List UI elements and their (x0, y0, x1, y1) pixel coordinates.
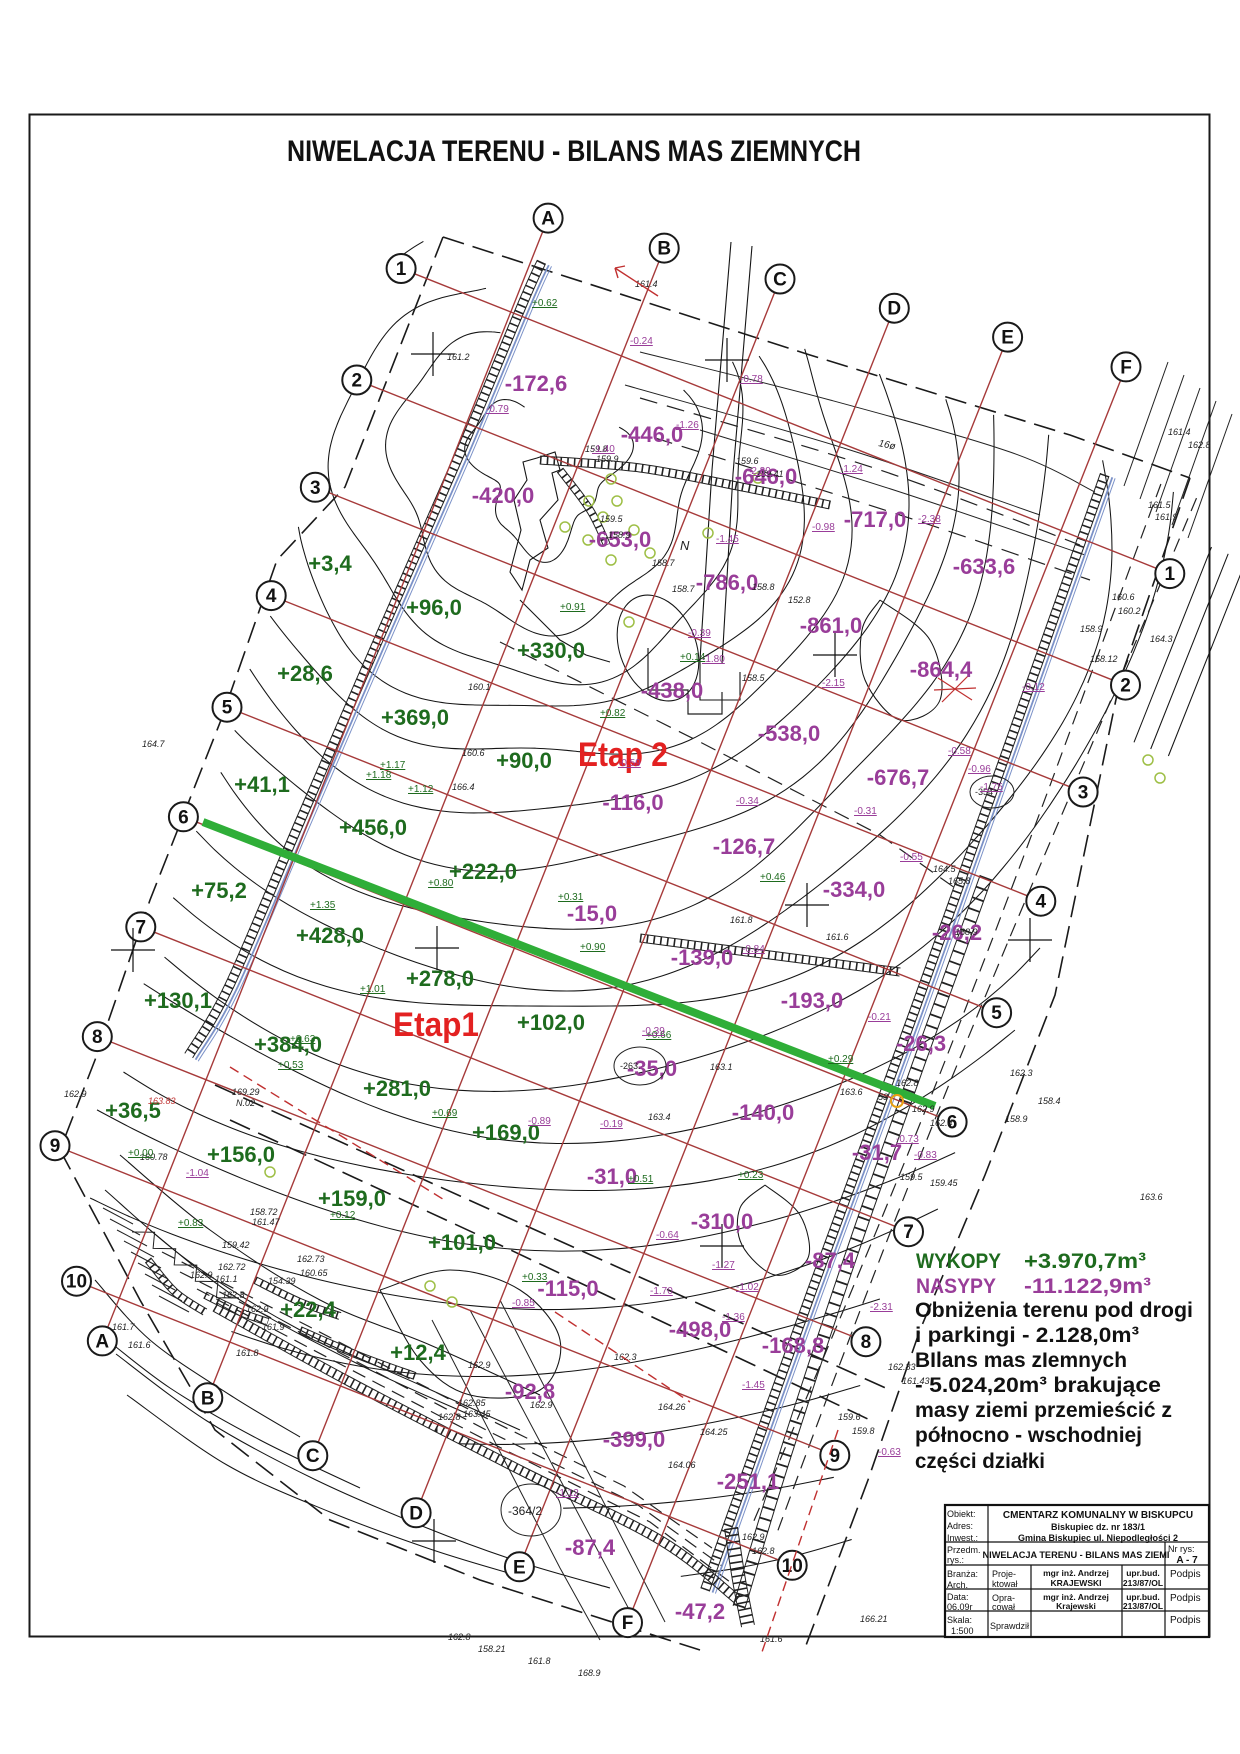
svg-text:-0.39: -0.39 (642, 1026, 665, 1037)
svg-text:158.8: 158.8 (752, 582, 775, 592)
svg-text:-1.75: -1.75 (980, 782, 1003, 793)
svg-text:+0.63: +0.63 (290, 1034, 316, 1045)
svg-text:-26,3: -26,3 (896, 1031, 946, 1056)
svg-text:-0.89: -0.89 (528, 1116, 551, 1127)
svg-text:-1.80: -1.80 (702, 654, 725, 665)
svg-text:162.4: 162.4 (930, 1118, 953, 1128)
svg-text:163.4: 163.4 (648, 1112, 671, 1122)
svg-text:CMENTARZ KOMUNALNY W BISKUPCU: CMENTARZ KOMUNALNY W BISKUPCU (1003, 1510, 1193, 1521)
svg-text:162.8: 162.8 (896, 1078, 919, 1088)
svg-text:-0.34: -0.34 (736, 796, 759, 807)
svg-text:Podpis: Podpis (1170, 1615, 1201, 1626)
svg-text:162.9: 162.9 (530, 1400, 553, 1410)
svg-text:164.5: 164.5 (933, 864, 957, 874)
svg-text:162.72: 162.72 (218, 1262, 246, 1272)
svg-text:-334,0: -334,0 (823, 877, 885, 902)
svg-text:161.1: 161.1 (215, 1274, 238, 1284)
svg-text:+0.33: +0.33 (522, 1272, 548, 1283)
svg-text:161.9: 161.9 (1155, 512, 1178, 522)
svg-text:Gmina Biskupiec ul. Niepodległ: Gmina Biskupiec ul. Niepodległości 2 (1018, 1533, 1178, 1543)
svg-text:D: D (409, 1503, 423, 1524)
svg-text:-2.31: -2.31 (870, 1302, 893, 1313)
svg-text:161.7: 161.7 (112, 1322, 136, 1332)
svg-text:158.72: 158.72 (250, 1207, 278, 1217)
svg-text:C: C (306, 1446, 320, 1467)
svg-text:161.47: 161.47 (252, 1217, 281, 1227)
svg-text:1: 1 (396, 259, 407, 280)
svg-text:162.3: 162.3 (1010, 1068, 1033, 1078)
svg-text:164.7: 164.7 (142, 739, 166, 749)
svg-text:9: 9 (50, 1136, 61, 1157)
svg-text:+1.35: +1.35 (310, 900, 336, 911)
svg-text:158.5: 158.5 (742, 673, 766, 683)
svg-text:6: 6 (178, 807, 189, 828)
svg-text:161.6: 161.6 (128, 1340, 151, 1350)
svg-text:168.9: 168.9 (578, 1668, 601, 1678)
svg-text:+369,0: +369,0 (381, 705, 449, 730)
svg-text:+0.46: +0.46 (760, 872, 786, 883)
svg-text:159.45: 159.45 (930, 1178, 959, 1188)
svg-text:Przedm.: Przedm. (947, 1545, 981, 1555)
svg-text:162.83: 162.83 (888, 1362, 916, 1372)
svg-text:162.8: 162.8 (438, 1412, 461, 1422)
svg-text:162.3: 162.3 (614, 1352, 637, 1362)
svg-text:3: 3 (1078, 783, 1089, 804)
svg-text:5: 5 (991, 1003, 1002, 1024)
svg-text:-15,0: -15,0 (567, 901, 617, 926)
svg-text:-116,0: -116,0 (602, 790, 663, 815)
svg-text:+428,0: +428,0 (296, 923, 364, 948)
svg-text:158.7: 158.7 (652, 558, 676, 568)
svg-text:159.9: 159.9 (596, 454, 619, 464)
svg-text:161.8: 161.8 (236, 1348, 259, 1358)
svg-text:-47,2: -47,2 (675, 1599, 725, 1624)
svg-text:162.8: 162.8 (752, 1546, 775, 1556)
svg-text:163.6: 163.6 (840, 1087, 863, 1097)
svg-text:WYKOPY: WYKOPY (916, 1249, 1001, 1273)
svg-text:północno - wschodniej: północno - wschodniej (915, 1423, 1142, 1447)
svg-text:1: 1 (1165, 564, 1176, 585)
svg-text:+102,0: +102,0 (517, 1010, 585, 1035)
svg-text:+0.51: +0.51 (628, 1174, 654, 1185)
svg-text:rys.:: rys.: (947, 1555, 964, 1565)
svg-text:164.25: 164.25 (700, 1427, 729, 1437)
svg-text:-87,4: -87,4 (565, 1535, 616, 1560)
svg-text:-2.38: -2.38 (918, 514, 941, 525)
svg-text:+96,0: +96,0 (406, 595, 462, 620)
svg-text:4: 4 (266, 586, 277, 607)
svg-text:+456,0: +456,0 (339, 815, 407, 840)
svg-text:4: 4 (1036, 892, 1047, 913)
svg-text:-1.02: -1.02 (736, 1282, 759, 1293)
svg-text:-0.58: -0.58 (948, 746, 971, 757)
svg-text:i parkingi - 2.128,0m³: i parkingi - 2.128,0m³ (915, 1323, 1139, 1347)
svg-text:F: F (1120, 357, 1132, 378)
svg-text:-1.24: -1.24 (840, 464, 863, 475)
svg-text:162.8: 162.8 (222, 1290, 245, 1300)
svg-text:8: 8 (861, 1332, 872, 1353)
svg-text:-1.27: -1.27 (712, 1260, 735, 1271)
svg-text:169.29: 169.29 (232, 1087, 260, 1097)
svg-text:-1.40: -1.40 (592, 444, 615, 455)
svg-text:160.65: 160.65 (300, 1268, 329, 1278)
svg-text:+0.90: +0.90 (580, 942, 606, 953)
svg-text:-11.122,9m³: -11.122,9m³ (1024, 1274, 1151, 1298)
svg-text:KRAJEWSKI: KRAJEWSKI (1050, 1578, 1101, 1588)
svg-text:154.39: 154.39 (268, 1276, 296, 1286)
svg-text:158.21: 158.21 (478, 1644, 506, 1654)
svg-text:+1.12: +1.12 (408, 784, 434, 795)
svg-text:-0.63: -0.63 (878, 1447, 901, 1458)
svg-text:+0.62: +0.62 (532, 298, 558, 309)
svg-text:+0.69: +0.69 (432, 1108, 458, 1119)
svg-text:+3,4: +3,4 (308, 551, 352, 576)
svg-text:ktował: ktował (992, 1579, 1018, 1589)
svg-text:166.4: 166.4 (452, 782, 475, 792)
svg-text:-1.36: -1.36 (722, 1312, 745, 1323)
svg-text:162.85: 162.85 (458, 1398, 487, 1408)
svg-text:159.6: 159.6 (736, 456, 759, 466)
svg-text:D: D (887, 299, 901, 320)
svg-text:1:500: 1:500 (951, 1626, 974, 1636)
svg-text:NIWELACJA TERENU - BILANS MAS: NIWELACJA TERENU - BILANS MAS ZIEMI (983, 1550, 1170, 1560)
svg-text:Sprawdził: Sprawdził (990, 1621, 1029, 1631)
svg-text:-1.12: -1.12 (556, 1488, 579, 1499)
svg-text:-1.04: -1.04 (186, 1168, 209, 1179)
svg-text:-864,4: -864,4 (910, 657, 973, 682)
svg-text:-633,6: -633,6 (953, 554, 1015, 579)
svg-text:E: E (1001, 328, 1014, 349)
svg-text:161.2: 161.2 (447, 352, 470, 362)
svg-text:-1.45: -1.45 (742, 1380, 765, 1391)
svg-text:-861,0: -861,0 (800, 613, 862, 638)
svg-text:-0.31: -0.31 (854, 806, 877, 817)
svg-text:161.8: 161.8 (730, 915, 753, 925)
svg-text:162.9: 162.9 (912, 1104, 935, 1114)
svg-text:części działki: części działki (915, 1449, 1045, 1473)
svg-text:162.8: 162.8 (448, 1632, 471, 1642)
svg-text:158.9: 158.9 (1080, 624, 1103, 634)
svg-text:-446,0: -446,0 (621, 422, 683, 447)
svg-text:+22,4: +22,4 (280, 1297, 336, 1322)
svg-text:163.45: 163.45 (463, 1409, 492, 1419)
svg-text:Inwest.:: Inwest.: (947, 1533, 978, 1543)
svg-text:-251,1: -251,1 (717, 1469, 779, 1494)
svg-text:E: E (513, 1557, 526, 1578)
svg-text:upr.bud.: upr.bud. (1126, 1568, 1160, 1578)
svg-text:Obniżenia terenu pod drogi: Obniżenia terenu pod drogi (915, 1298, 1193, 1322)
svg-text:-0.73: -0.73 (896, 1134, 919, 1145)
svg-text:+222,0: +222,0 (449, 859, 517, 884)
svg-text:Proje-: Proje- (992, 1569, 1016, 1579)
svg-text:161.6: 161.6 (760, 1634, 783, 1644)
svg-text:7: 7 (136, 917, 147, 938)
svg-text:Arch.: Arch. (947, 1580, 968, 1590)
svg-text:162.8: 162.8 (1188, 440, 1211, 450)
svg-text:-399,0: -399,0 (603, 1427, 665, 1452)
svg-text:+75,2: +75,2 (191, 878, 247, 903)
svg-text:Biskupiec dz. nr 183/1: Biskupiec dz. nr 183/1 (1051, 1522, 1145, 1532)
svg-text:162.9: 162.9 (468, 1360, 491, 1370)
svg-text:Adres:: Adres: (947, 1521, 973, 1531)
svg-text:164.26: 164.26 (658, 1402, 686, 1412)
svg-text:163.1: 163.1 (710, 1062, 733, 1072)
svg-text:159.5: 159.5 (900, 1172, 924, 1182)
svg-text:+41,1: +41,1 (234, 772, 290, 797)
svg-text:-172,6: -172,6 (505, 371, 567, 396)
svg-text:2: 2 (1120, 676, 1131, 697)
svg-text:-717,0: -717,0 (844, 507, 906, 532)
svg-text:+0.29: +0.29 (828, 1054, 854, 1065)
svg-text:-676,7: -676,7 (867, 765, 929, 790)
svg-text:161.4: 161.4 (1168, 427, 1191, 437)
svg-text:+159,0: +159,0 (318, 1186, 386, 1211)
svg-text:+0.80: +0.80 (428, 878, 454, 889)
svg-text:Nr rys:: Nr rys: (1168, 1544, 1195, 1554)
svg-text:-1.26: -1.26 (676, 420, 699, 431)
svg-text:-193,0: -193,0 (781, 988, 843, 1013)
svg-text:Podpis: Podpis (1170, 1569, 1201, 1580)
svg-text:+0.83: +0.83 (178, 1218, 204, 1229)
svg-text:A: A (541, 209, 555, 230)
svg-text:+101,0: +101,0 (428, 1230, 496, 1255)
svg-text:F: F (622, 1613, 634, 1634)
svg-text:B: B (657, 239, 671, 260)
svg-text:-0.12: -0.12 (1022, 682, 1045, 693)
svg-text:+130,1: +130,1 (144, 988, 212, 1013)
svg-text:166.21: 166.21 (860, 1614, 888, 1624)
svg-text:152.8: 152.8 (788, 595, 811, 605)
svg-text:159.6: 159.6 (838, 1412, 861, 1422)
svg-text:-1.70: -1.70 (650, 1286, 673, 1297)
svg-text:+0.82: +0.82 (600, 708, 626, 719)
svg-text:+278,0: +278,0 (406, 966, 474, 991)
svg-text:158.9: 158.9 (1005, 1114, 1028, 1124)
svg-text:158.12: 158.12 (1090, 654, 1118, 664)
svg-text:Etap1: Etap1 (393, 1006, 479, 1044)
svg-text:-364/2: -364/2 (508, 1504, 542, 1518)
svg-text:+330,0: +330,0 (517, 638, 585, 663)
svg-text:-420,0: -420,0 (472, 483, 534, 508)
svg-text:-0.96: -0.96 (968, 764, 991, 775)
svg-text:161.9: 161.9 (262, 1322, 285, 1332)
svg-text:-0.83: -0.83 (914, 1150, 937, 1161)
svg-text:160.6: 160.6 (1112, 592, 1135, 602)
svg-text:158.9: 158.9 (608, 530, 631, 540)
svg-text:-0.79: -0.79 (486, 404, 509, 415)
svg-text:161.5: 161.5 (1148, 500, 1172, 510)
svg-text:159.42: 159.42 (222, 1240, 250, 1250)
svg-text:mgr inż. Andrzej: mgr inż. Andrzej (1043, 1568, 1109, 1578)
svg-text:161.8: 161.8 (528, 1656, 551, 1666)
svg-text:-140,0: -140,0 (732, 1100, 794, 1125)
svg-text:cował: cował (992, 1602, 1015, 1612)
svg-text:-0.85: -0.85 (512, 1298, 535, 1309)
svg-text:8: 8 (92, 1027, 103, 1048)
svg-text:+0.12: +0.12 (330, 1210, 356, 1221)
svg-text:Podpis: Podpis (1170, 1593, 1201, 1604)
svg-text:Branża:: Branża: (947, 1569, 978, 1579)
svg-text:+3.970,7m³: +3.970,7m³ (1024, 1249, 1146, 1273)
svg-text:NIWELACJA TERENU - BILANS MAS: NIWELACJA TERENU - BILANS MAS ZIEMNYCH (287, 135, 861, 168)
svg-text:-2.15: -2.15 (822, 678, 845, 689)
svg-text:A: A (95, 1331, 109, 1352)
svg-text:162.9: 162.9 (742, 1532, 765, 1542)
svg-text:-139,0: -139,0 (671, 945, 733, 970)
svg-text:-263.: -263. (620, 1061, 641, 1071)
svg-text:A - 7: A - 7 (1176, 1555, 1198, 1566)
svg-text:213/87/OL: 213/87/OL (1123, 1578, 1163, 1588)
svg-text:+28,6: +28,6 (277, 661, 333, 686)
svg-text:+0.53: +0.53 (278, 1060, 304, 1071)
svg-text:-2.39: -2.39 (748, 466, 771, 477)
svg-text:162.9: 162.9 (246, 1304, 269, 1314)
svg-text:-168,8: -168,8 (762, 1333, 824, 1358)
svg-text:164.3: 164.3 (1150, 634, 1173, 644)
svg-text:160.6: 160.6 (462, 748, 485, 758)
svg-text:N.02: N.02 (236, 1098, 255, 1108)
svg-text:N: N (680, 538, 690, 553)
svg-text:165.8: 165.8 (948, 876, 971, 886)
svg-text:158.7: 158.7 (672, 584, 696, 594)
svg-text:-0.39: -0.39 (688, 628, 711, 639)
svg-text:06.09r: 06.09r (947, 1602, 973, 1612)
svg-text:BIlans mas zIemnych: BIlans mas zIemnych (915, 1348, 1127, 1372)
svg-text:-1.45: -1.45 (716, 534, 739, 545)
svg-text:168.9: 168.9 (955, 927, 978, 937)
svg-text:163.6: 163.6 (1140, 1192, 1163, 1202)
svg-text:-310,0: -310,0 (691, 1209, 753, 1234)
svg-text:-0.19: -0.19 (600, 1119, 623, 1130)
svg-text:NASYPY: NASYPY (916, 1274, 996, 1298)
svg-text:10: 10 (782, 1556, 803, 1577)
svg-text:-0.64: -0.64 (656, 1230, 679, 1241)
svg-text:+0.31: +0.31 (558, 892, 584, 903)
svg-text:+1.01: +1.01 (360, 984, 386, 995)
svg-text:-126,7: -126,7 (713, 834, 775, 859)
svg-text:162.73: 162.73 (297, 1254, 325, 1264)
svg-text:-0.55: -0.55 (900, 852, 923, 863)
svg-text:+90,0: +90,0 (496, 748, 552, 773)
svg-text:B: B (201, 1388, 215, 1409)
svg-text:Obiekt:: Obiekt: (947, 1509, 976, 1519)
svg-text:160.1: 160.1 (468, 682, 491, 692)
svg-text:+0.23: +0.23 (738, 1170, 764, 1181)
svg-text:-0.78: -0.78 (740, 374, 763, 385)
svg-text:+1.18: +1.18 (366, 770, 392, 781)
svg-text:+12,4: +12,4 (390, 1340, 446, 1365)
svg-text:-0.84: -0.84 (742, 944, 765, 955)
svg-text:C: C (773, 270, 787, 291)
svg-text:159.5: 159.5 (600, 514, 624, 524)
svg-text:7: 7 (903, 1222, 914, 1243)
svg-text:-0.24: -0.24 (630, 336, 653, 347)
svg-text:-786,0: -786,0 (696, 570, 758, 595)
svg-text:- 5.024,20m³ brakujące: - 5.024,20m³ brakujące (915, 1373, 1161, 1397)
svg-text:2: 2 (352, 371, 363, 392)
svg-text:Skala:: Skala: (947, 1615, 972, 1625)
svg-text:-0.98: -0.98 (812, 522, 835, 533)
svg-text:162.9: 162.9 (190, 1270, 213, 1280)
svg-text:+0.91: +0.91 (560, 602, 586, 613)
svg-text:161.6: 161.6 (826, 932, 849, 942)
svg-text:-538,0: -538,0 (758, 721, 820, 746)
svg-text:+281,0: +281,0 (363, 1076, 431, 1101)
svg-text:Krajewski: Krajewski (1056, 1601, 1096, 1611)
svg-text:5: 5 (222, 698, 233, 719)
svg-text:Data:: Data: (947, 1592, 969, 1602)
svg-text:-0.59: -0.59 (618, 758, 641, 769)
svg-text:-31,7: -31,7 (852, 1140, 902, 1165)
svg-text:+0.00: +0.00 (128, 1148, 154, 1159)
svg-text:162.9: 162.9 (64, 1089, 87, 1099)
svg-text:masy ziemi przemieścić z: masy ziemi przemieścić z (915, 1398, 1172, 1422)
svg-text:158.4: 158.4 (1038, 1096, 1061, 1106)
svg-text:3: 3 (310, 478, 321, 499)
svg-text:10: 10 (66, 1272, 87, 1293)
svg-text:160.2: 160.2 (1118, 606, 1141, 616)
svg-text:53: 53 (878, 1092, 888, 1102)
svg-text:-438,0: -438,0 (641, 678, 703, 703)
svg-text:-0.21: -0.21 (868, 1012, 891, 1023)
svg-text:213/87/OL: 213/87/OL (1123, 1601, 1163, 1611)
svg-text:164.06: 164.06 (668, 1460, 696, 1470)
svg-text:+156,0: +156,0 (207, 1142, 275, 1167)
svg-text:163.83: 163.83 (148, 1096, 176, 1106)
svg-text:-87,4: -87,4 (805, 1248, 856, 1273)
svg-text:159.8: 159.8 (852, 1426, 875, 1436)
